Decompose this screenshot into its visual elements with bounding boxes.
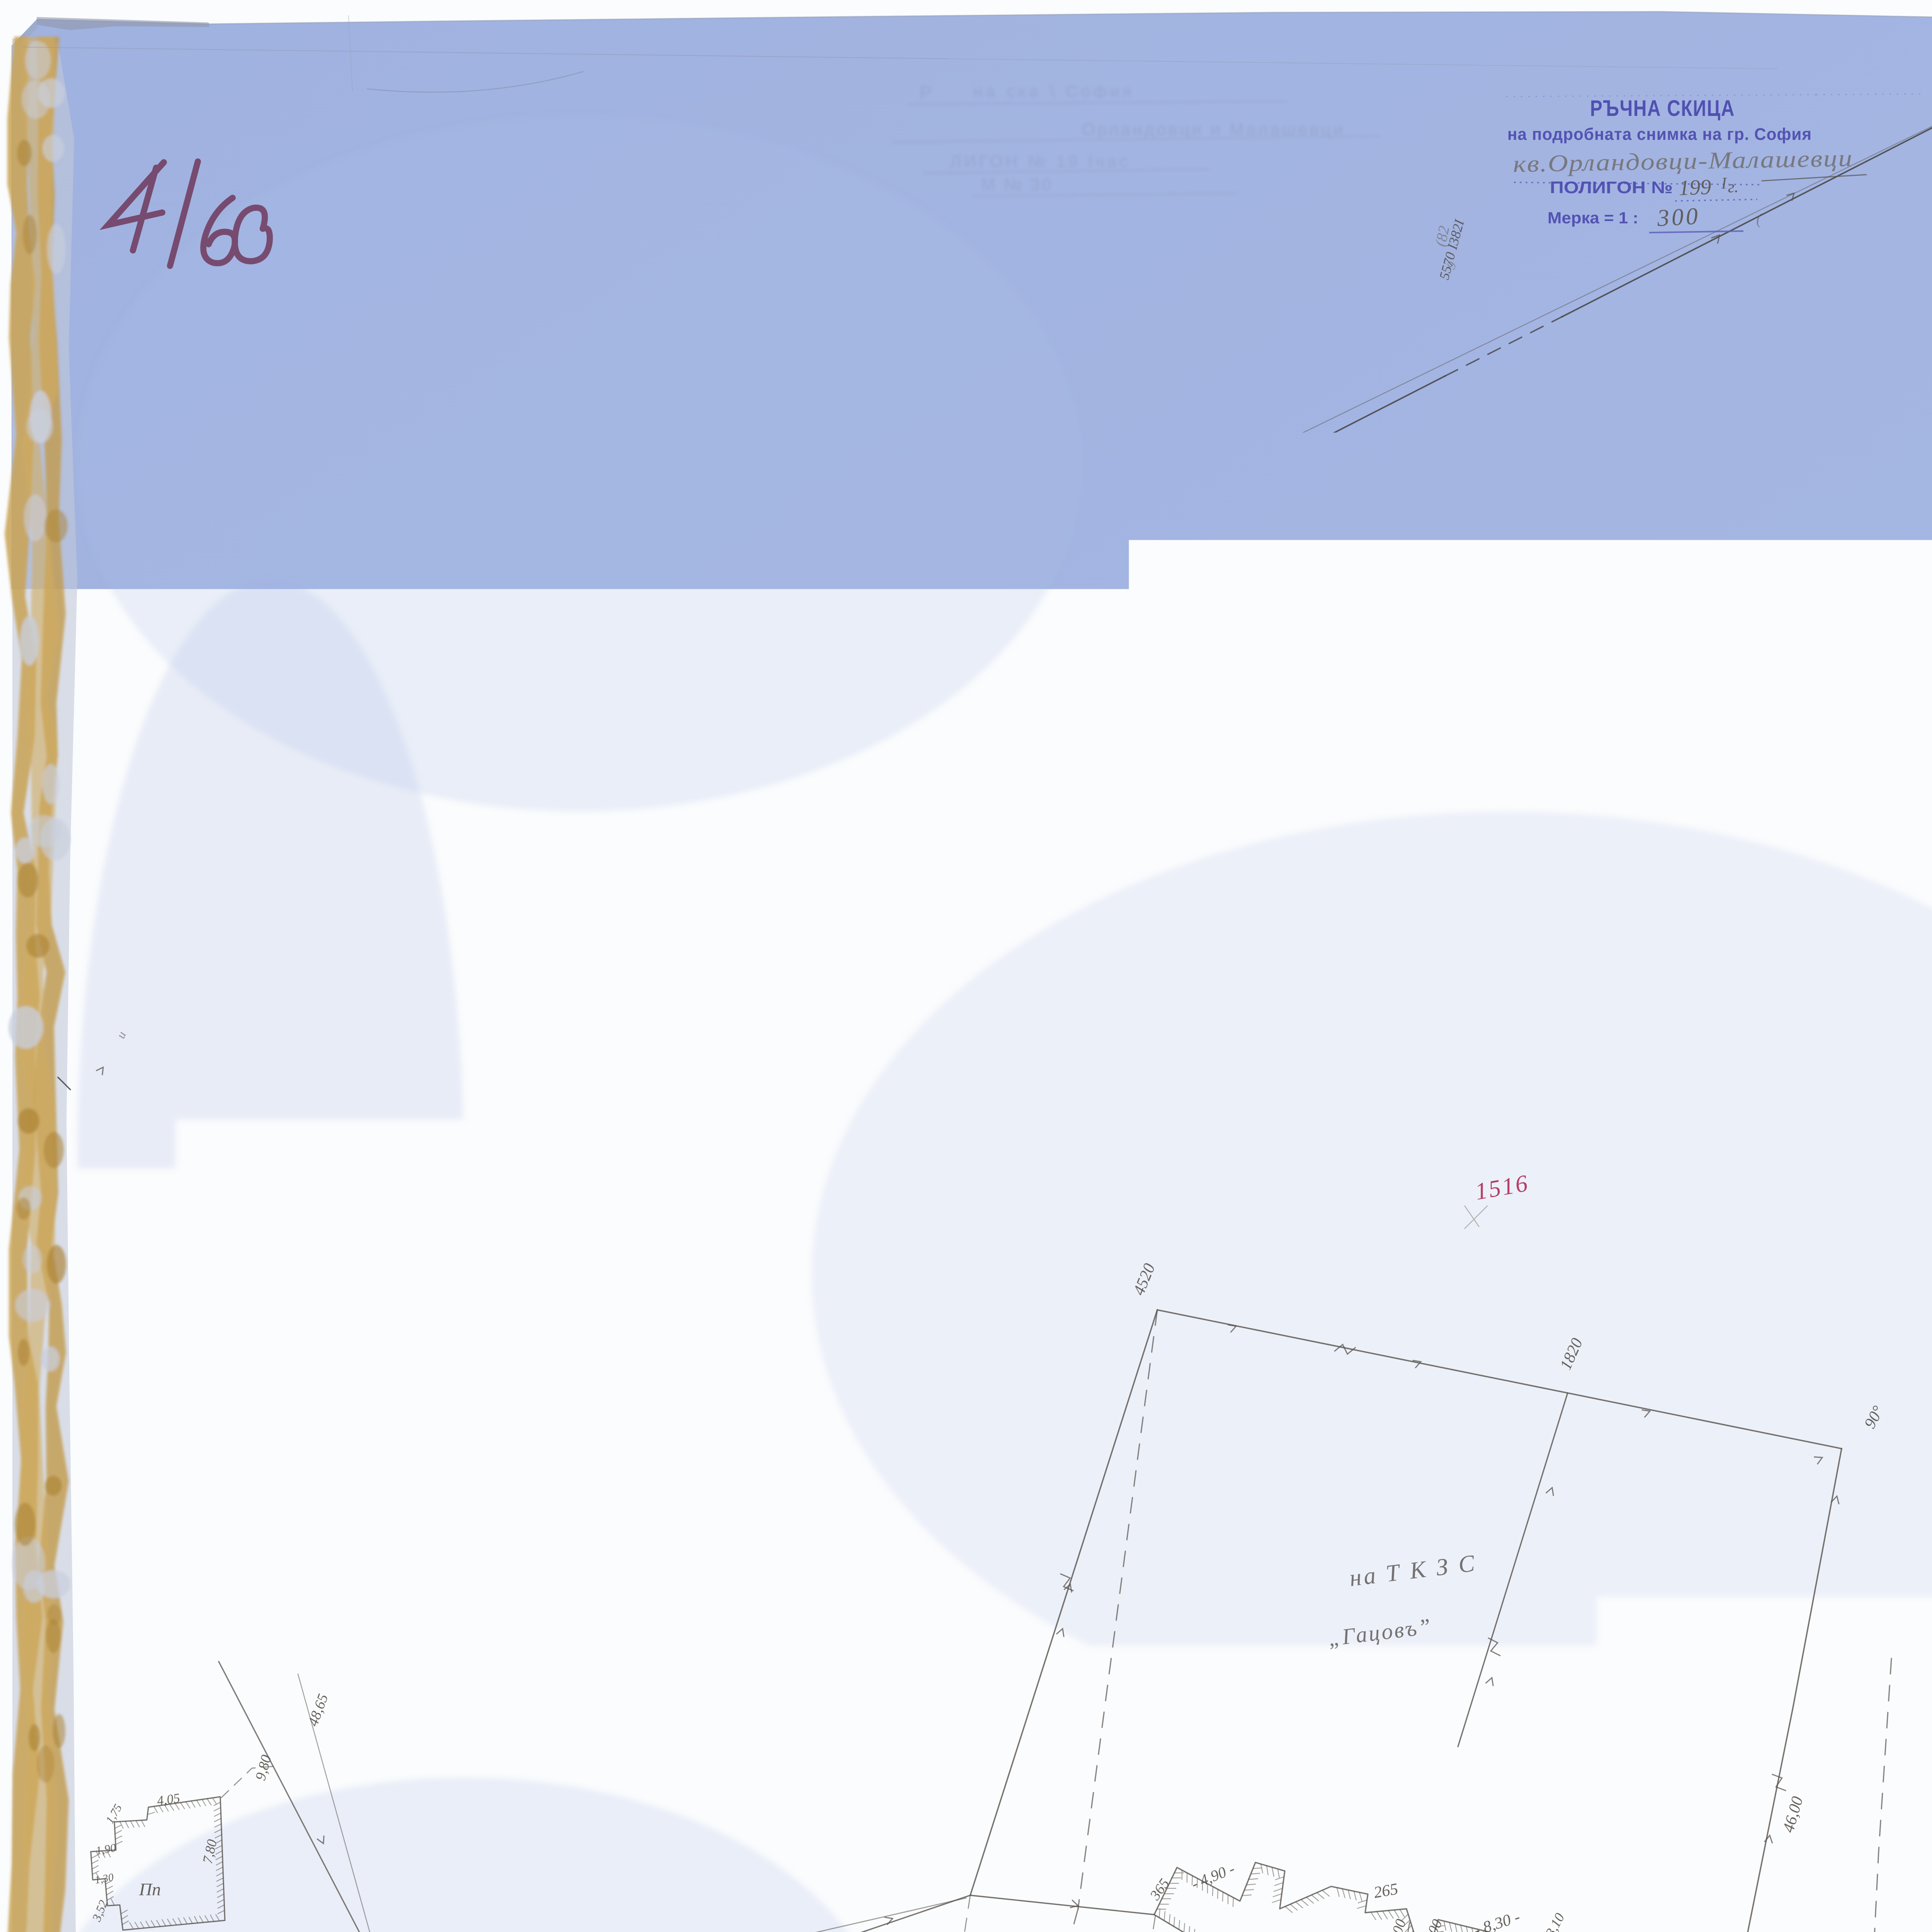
svg-text:г.: г. (1728, 177, 1739, 196)
svg-text:300: 300 (1656, 203, 1701, 231)
svg-text:Мерка = 1 :: Мерка = 1 : (1548, 209, 1638, 227)
svg-text:Пп: Пп (139, 1879, 161, 1899)
svg-text:М № 30: М № 30 (981, 175, 1053, 194)
svg-text:ЛИГОН № 19 Iчас: ЛИГОН № 19 Iчас (951, 152, 1131, 170)
svg-text:на подробната снимка на гр. Со: на подробната снимка на гр. София (1507, 125, 1812, 144)
svg-text:Орландовци и Малашевци: Орландовци и Малашевци (1082, 120, 1345, 139)
svg-text:на ска \ София: на ска \ София (974, 83, 1135, 100)
svg-text:199: 199 (1678, 175, 1711, 200)
svg-text:РЪЧНА СКИЦА: РЪЧНА СКИЦА (1590, 96, 1735, 121)
svg-text:ПОЛИГОН №: ПОЛИГОН № (1550, 178, 1673, 197)
svg-text:Р: Р (920, 82, 935, 102)
